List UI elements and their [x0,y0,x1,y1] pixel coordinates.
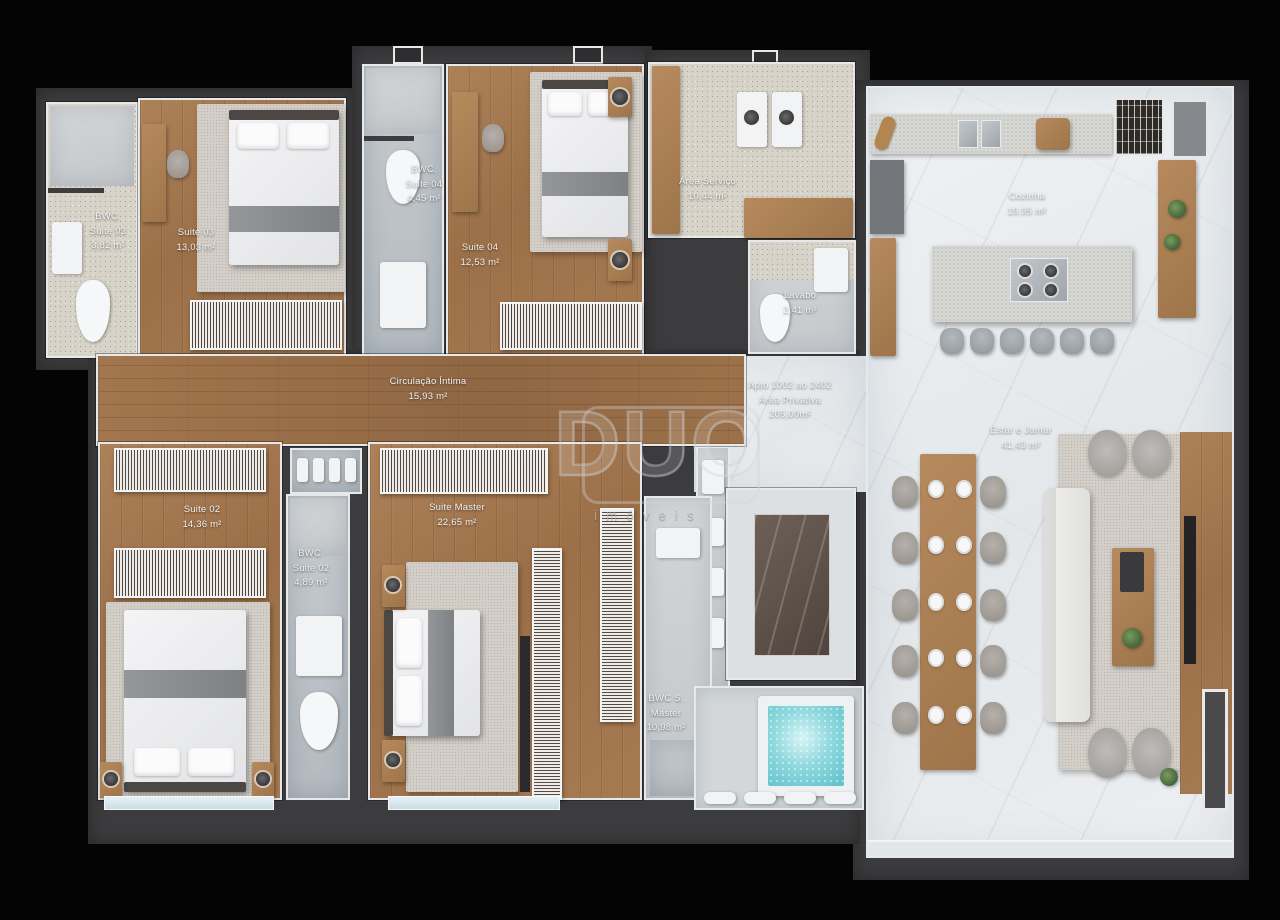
dryer [772,92,802,147]
burner [1045,265,1057,277]
plate [928,706,944,724]
toilet [76,280,110,342]
room-area-servico [648,62,855,238]
room-name: Suite 04 [428,241,532,256]
room-area: 10,44 m² [645,190,770,205]
headboard [124,782,246,792]
lamp [256,772,270,786]
sofa [1044,488,1090,722]
nightstand [100,762,122,798]
pillow [396,618,422,668]
dining-chair [892,702,918,734]
desk [142,124,166,222]
washer [737,92,767,147]
jacuzzi-water [768,706,844,786]
dining-chair [892,589,918,621]
label-bwc-suite04: BWC. Suite 04 4,45 m² [372,163,476,207]
wardrobe [380,448,548,494]
room-area: 19,95 m² [964,205,1090,220]
room-name: Suite 04 [372,178,476,193]
label-suite02: Suite 02 14,36 m² [150,503,254,532]
speaker [612,252,628,268]
lamp [386,578,400,592]
room-name: Suite 02 [266,562,356,577]
dining-chair [892,645,918,677]
lounger [824,792,856,804]
plate [956,536,972,554]
watermark-tagline: imóveis [594,508,703,523]
tv-panel [1184,516,1196,664]
room-name: BWC. [372,163,476,178]
room-name: Estar e Jantar [949,424,1093,439]
stool [1000,328,1024,354]
room-area: 4,89 m² [266,576,356,591]
burner [1019,284,1031,296]
plate [956,649,972,667]
headboard [229,110,339,120]
room-name: Lavabo [747,289,853,304]
armchair [1088,728,1126,778]
toilet [300,692,338,750]
label-area-servico: Área Serviço 10,44 m² [645,175,770,204]
desk-chair [167,150,189,178]
cabinet [652,66,680,234]
cabinet [870,238,896,356]
label-bwc-suite02: BWC. Suite 02 4,89 m² [266,547,356,591]
room-name: Área Serviço [645,175,770,190]
plate [928,593,944,611]
stool [1060,328,1084,354]
room-area: 14,36 m² [150,518,254,533]
room-area: 22,65 m² [394,516,520,531]
washbasin [296,616,342,676]
room-name: Suite 02 [150,503,254,518]
label-suite-master: Suite Master 22,65 m² [394,501,520,530]
dining-chair [980,589,1006,621]
label-cozinha: Cozinha 19,95 m² [964,190,1090,219]
sink [981,120,1001,148]
plate [956,480,972,498]
label-circulacao: Circulação Íntima 15,93 m² [346,375,510,404]
vent [573,46,603,64]
room-area: 15,93 m² [346,390,510,405]
bed-throw [124,670,246,698]
speaker [612,89,628,105]
room-name: BWC. [266,547,356,562]
stool [1030,328,1054,354]
pillow [188,748,234,776]
armchair [1088,430,1126,476]
wardrobe [114,548,266,598]
dining-chair [980,532,1006,564]
watermark-logo: DUO [554,398,764,490]
plant [1164,234,1180,250]
pillow [287,123,329,149]
stool [1090,328,1114,354]
room-name: Cozinha [964,190,1090,205]
room-name: Master [622,707,710,722]
wardrobe-tall [600,508,634,722]
refrigerator [870,160,904,234]
wardrobe-tall [532,548,562,800]
room-area: 4,45 m² [372,192,476,207]
room-bwc-suite02 [286,494,350,800]
balcony-band [868,840,1232,858]
pillow [237,123,279,149]
watermark: DUO imóveis [548,400,778,540]
washbasin [380,262,426,328]
plate [928,649,944,667]
appliance-cabinet [1172,100,1208,158]
apto-line: Apto 1002 ao 2402 [717,379,863,394]
shoe-box [297,458,308,482]
tv-console [1120,552,1144,592]
room-area: 2,41 m² [747,304,853,319]
lounger [744,792,776,804]
balcony-door [1202,689,1228,811]
partition-wall [364,136,414,141]
room-area: 10,98 m² [622,721,710,736]
room-name: Suite Master [394,501,520,516]
room-suite02 [98,442,282,800]
shoe-box [345,458,356,482]
floorplan-canvas: BWC. Suite 03 3,82 m² Suite 03 13,03 m² … [0,0,1280,920]
room-name: Circulação Íntima [346,375,510,390]
dining-chair [892,476,918,508]
burner [1045,284,1057,296]
label-estar-jantar: Estar e Jantar 41,43 m² [949,424,1093,453]
window [104,796,274,810]
dining-chair [980,702,1006,734]
shoe-rack [290,448,362,494]
partition-wall [48,188,104,193]
nightstand [382,565,405,607]
sink [958,120,978,148]
plate [928,480,944,498]
plant [1122,628,1142,648]
washbasin [814,248,848,292]
shoe-box [329,458,340,482]
sofa-backrest [1044,488,1056,722]
dryer-door [779,110,794,125]
window [388,796,560,810]
pillow [134,748,180,776]
plant [1160,768,1178,786]
plate [928,536,944,554]
burner [1019,265,1031,277]
stool [970,328,994,354]
bed-throw [428,610,454,736]
dining-chair [980,476,1006,508]
desk-chair [482,124,504,152]
bed [124,610,246,792]
washer-door [744,110,759,125]
shoe-box [313,458,324,482]
armchair [1132,430,1170,476]
bed-throw [542,172,628,196]
plant [1168,200,1186,218]
label-suite04: Suite 04 12,53 m² [428,241,532,270]
wardrobe [114,448,266,492]
wine-rack [1114,98,1164,156]
plate [956,593,972,611]
bed [384,610,480,736]
headboard [384,610,393,736]
plate [956,706,972,724]
room-suite04 [446,64,644,358]
nightstand [608,239,632,281]
jacuzzi-frame [758,696,854,796]
wardrobe [500,302,642,350]
room-name: Suite 03 [144,226,248,241]
label-bwc-master: BWC S. Master 10,98 m² [622,692,710,736]
stool [940,328,964,354]
shower-area [50,106,134,186]
nightstand [608,77,632,117]
room-name: BWC S. [622,692,710,707]
nightstand [252,762,274,798]
lamp [104,772,118,786]
nightstand [382,740,405,782]
pillow [396,676,422,726]
room-bwc-suite04 [362,64,444,356]
room-area: 12,53 m² [428,256,532,271]
shower-area [366,68,440,134]
dining-chair [980,645,1006,677]
room-name: BWC. [56,210,160,225]
dining-chair [892,532,918,564]
kitchen-island [932,246,1132,322]
vent [393,46,423,64]
room-jacuzzi-terrace [694,686,864,810]
room-area: 41,43 m² [949,439,1093,454]
cooktop [1010,258,1068,302]
lounger [704,792,736,804]
tv-panel [520,636,530,792]
label-suite03: Suite 03 13,03 m² [144,226,248,255]
lounger [784,792,816,804]
cutting-board [1036,118,1070,150]
room-area: 13,03 m² [144,241,248,256]
pillow [548,92,582,116]
label-lavabo: Lavabo 2,41 m² [747,289,853,318]
lamp [386,753,400,767]
wardrobe [190,300,342,350]
